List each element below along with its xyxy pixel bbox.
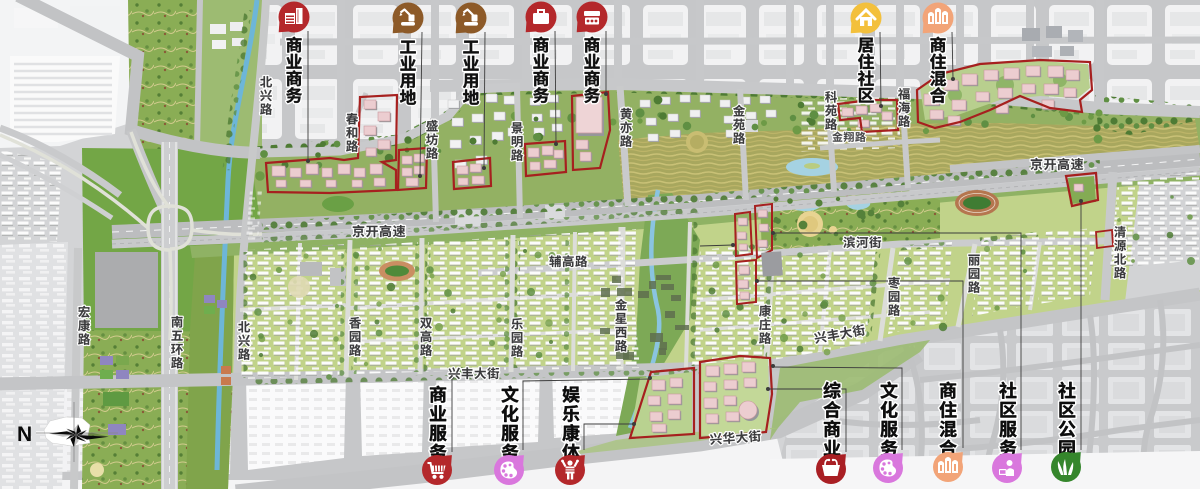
svg-text:N: N: [17, 423, 32, 446]
